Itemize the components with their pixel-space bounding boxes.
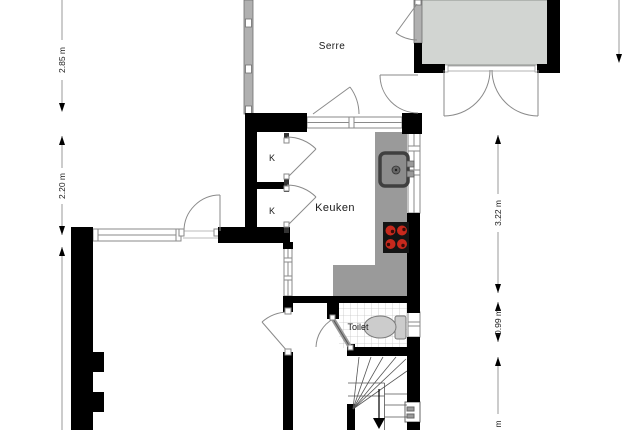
burner-icon (397, 239, 407, 249)
wall-segment (414, 64, 445, 73)
wall-segment (93, 352, 104, 372)
annex-room (421, 0, 548, 65)
door-swing (184, 195, 220, 231)
wall-segment (245, 113, 257, 243)
wall-segment (218, 227, 290, 243)
burner-icon (386, 226, 396, 236)
window (93, 229, 219, 241)
wall-segment (407, 357, 420, 402)
stairs (348, 357, 407, 430)
glass-wall-segment (244, 0, 253, 114)
toilet-fixture-icon (364, 316, 406, 339)
wall-segment (283, 352, 293, 430)
stair-direction-arrow-icon (373, 389, 385, 429)
glass-walls (244, 0, 422, 114)
wall-segment (407, 337, 420, 357)
dimension-label-right-upper: 3.22 m (493, 200, 503, 226)
room-label-serre: Serre (319, 41, 345, 52)
dimension-label-left-upper: 2.85 m (57, 47, 67, 73)
window (307, 117, 402, 128)
wall-segment (414, 43, 422, 67)
wall-segment (93, 392, 104, 412)
dimension-label-right-lower: m (493, 420, 503, 427)
door-swing (284, 185, 316, 227)
burner-icon (397, 226, 407, 236)
door-swing (313, 87, 359, 114)
wall-segment (547, 0, 560, 73)
stove-icon (383, 222, 409, 253)
door-swing (262, 308, 291, 355)
door-swing (380, 75, 418, 113)
windows (93, 65, 541, 422)
counter-segment (333, 265, 407, 296)
wall-segment (71, 227, 93, 430)
door-swing (284, 137, 316, 179)
wall-segment (407, 422, 420, 430)
floor-plan-svg: Serre Keuken K K Toilet 2.85 m 2.20 m 3.… (0, 0, 640, 430)
window (284, 248, 292, 296)
room-label-toilet: Toilet (347, 322, 369, 332)
dimension-label-right-middle: 0.99 m (493, 309, 503, 335)
wall-segment (402, 113, 422, 134)
room-label-closet-bottom: K (269, 206, 275, 216)
dimension-label-left-middle: 2.20 m (57, 173, 67, 199)
door-opening-frame (442, 65, 541, 72)
door-swing (444, 70, 538, 116)
window (408, 312, 420, 337)
room-label-kitchen: Keuken (315, 202, 355, 214)
wall-segment (290, 296, 420, 303)
wall-segment (407, 303, 420, 313)
glass-wall-mullion (246, 19, 252, 27)
window (405, 402, 420, 422)
glass-wall-mullion (246, 106, 252, 114)
glass-wall-mullion (415, 0, 421, 5)
floor-plan-page: Serre Keuken K K Toilet 2.85 m 2.20 m 3.… (0, 0, 640, 430)
sink-icon (380, 153, 414, 186)
glass-wall-mullion (246, 65, 252, 73)
room-label-closet-top: K (269, 153, 275, 163)
wall-segment (283, 242, 293, 249)
